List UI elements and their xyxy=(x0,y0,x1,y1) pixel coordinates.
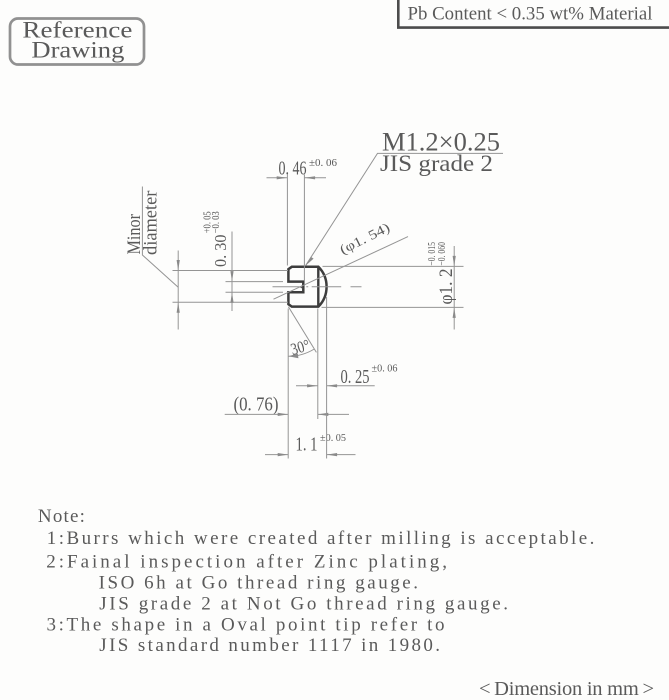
svg-text:±0. 06: ±0. 06 xyxy=(372,363,398,375)
svg-text:2:Fainal inspection after Zinc: 2:Fainal inspection after Zinc plating, xyxy=(46,551,447,572)
svg-text:−0. 03: −0. 03 xyxy=(211,211,222,233)
svg-text:JIS standard number 1117 in 19: JIS standard number 1117 in 1980. xyxy=(99,635,440,656)
svg-text:(φ1. 54): (φ1. 54) xyxy=(337,220,392,258)
svg-text:φ1. 2: φ1. 2 xyxy=(436,269,457,305)
svg-text:diameter: diameter xyxy=(140,190,161,255)
svg-text:0. 25: 0. 25 xyxy=(341,366,370,388)
svg-text:< Dimension in mm >: < Dimension in mm > xyxy=(479,678,654,700)
svg-text:JIS grade 2: JIS grade 2 xyxy=(380,151,493,176)
svg-text:1:Burrs which were created aft: 1:Burrs which were created after milling… xyxy=(47,528,595,549)
svg-text:1. 1: 1. 1 xyxy=(296,434,318,456)
svg-text:Drawing: Drawing xyxy=(31,37,125,62)
svg-text:JIS grade 2 at Not Go thread r: JIS grade 2 at Not Go thread ring gauge. xyxy=(99,594,508,615)
svg-text:Note:: Note: xyxy=(38,506,85,527)
svg-text:±0. 05: ±0. 05 xyxy=(320,432,346,444)
svg-text:±0. 06: ±0. 06 xyxy=(309,157,337,169)
svg-text:0. 46: 0. 46 xyxy=(279,158,307,180)
svg-text:Pb Content < 0.35 wt% Material: Pb Content < 0.35 wt% Material xyxy=(408,3,653,24)
svg-text:(0. 76): (0. 76) xyxy=(234,394,279,416)
svg-text:−0. 060: −0. 060 xyxy=(437,242,448,266)
svg-text:0. 30: 0. 30 xyxy=(211,235,230,268)
svg-text:3:The shape in a Oval point ti: 3:The shape in a Oval point tip refer to xyxy=(47,614,445,635)
svg-text:ISO 6h at Go thread ring gauge: ISO 6h at Go thread ring gauge. xyxy=(99,572,418,593)
